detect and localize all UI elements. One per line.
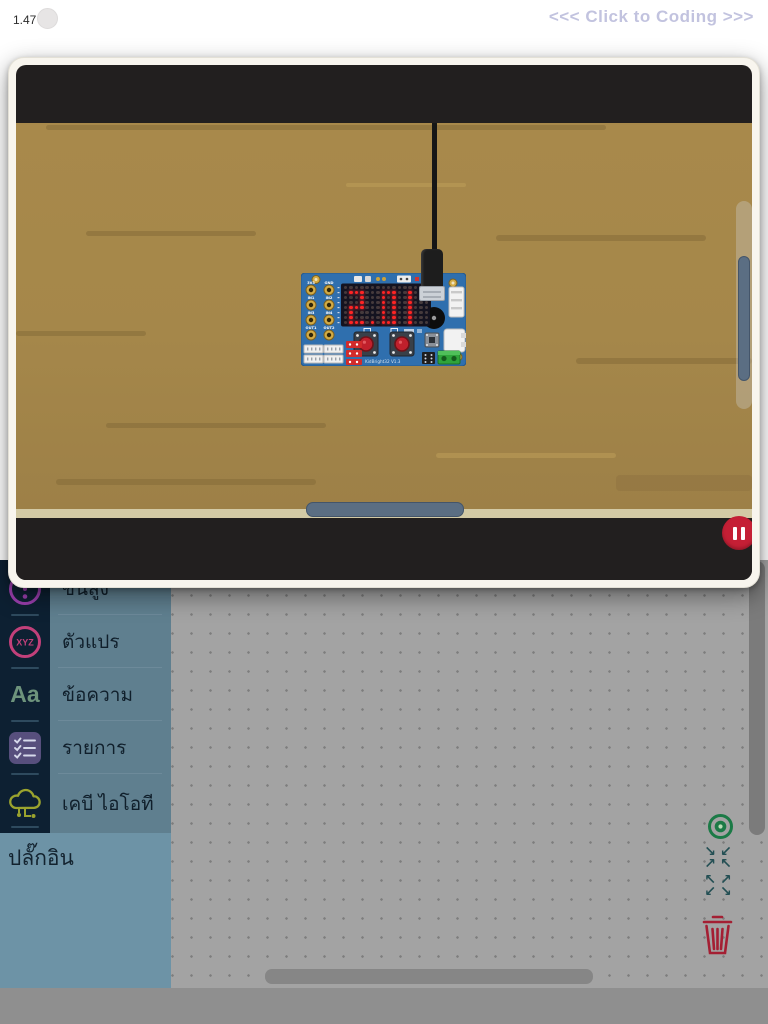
svg-text:OUT2: OUT2	[324, 326, 335, 330]
usb-cable	[432, 123, 437, 253]
simulator-horizontal-scrollbar[interactable]	[306, 502, 464, 517]
pause-button[interactable]	[722, 516, 752, 550]
iot-cloud-icon	[0, 774, 50, 833]
center-workspace-button[interactable]	[707, 813, 734, 840]
plugin-panel: ปลั๊กอิน	[0, 833, 171, 988]
sidebar-item-label: ข้อความ	[62, 668, 133, 721]
svg-text:IN1: IN1	[308, 296, 315, 300]
checklist-icon	[0, 721, 50, 774]
Aa-text-icon: Aa	[0, 668, 50, 721]
zoom-controls: ↘↙ ↗↖ ↖↗ ↙↘	[703, 845, 737, 897]
svg-text:OUT1: OUT1	[306, 326, 317, 330]
sidebar-item-label: ตัวแปร	[62, 615, 120, 668]
svg-text:IN3: IN3	[308, 311, 315, 315]
svg-text:IN4: IN4	[326, 311, 333, 315]
sidebar-item-label: เคบี ไอโอที	[62, 774, 154, 833]
top-bar: 1.47 <<< Click to Coding >>>	[0, 0, 768, 44]
zoom-out-button arrows-inward-icon[interactable]: ↗↖	[703, 857, 737, 869]
board-reset-button	[425, 333, 439, 347]
plugin-section-label[interactable]: ปลั๊กอิน	[8, 842, 74, 875]
simulator-vertical-scrollbar[interactable]	[738, 256, 750, 381]
svg-text:IN2: IN2	[326, 296, 333, 300]
led-matrix-display	[342, 284, 430, 326]
scene-bottom-mask	[16, 518, 752, 580]
click-to-coding-link[interactable]: <<< Click to Coding >>>	[549, 7, 754, 27]
trash-button[interactable]	[699, 911, 736, 957]
canvas-horizontal-scrollbar[interactable]	[265, 969, 593, 984]
usb-connector-metal	[419, 286, 445, 301]
simulator-vertical-scrollbar-track	[736, 201, 752, 409]
svg-text:3V3: 3V3	[307, 281, 315, 285]
pause-icon	[733, 527, 737, 540]
xyz-circle-icon: XYZ	[0, 615, 50, 668]
sidebar-item-variables[interactable]: XYZ ตัวแปร	[0, 615, 171, 668]
zoom-in-button arrows-outward-icon[interactable]: ↙↘	[703, 885, 737, 897]
divider	[11, 826, 39, 828]
status-dot	[37, 8, 58, 29]
simulator-viewport: 3V3 GND IN1 IN2 IN3 IN4 OUT1 OUT2	[16, 65, 752, 580]
usb-plug	[421, 249, 443, 289]
sidebar-item-label: รายการ	[62, 721, 126, 774]
canvas-vertical-scrollbar[interactable]	[749, 561, 765, 835]
bottom-bar	[0, 988, 768, 1024]
sidebar-item-text[interactable]: Aa ข้อความ	[0, 668, 171, 721]
board-switch-2	[390, 332, 414, 356]
target-icon	[707, 813, 734, 840]
trash-icon	[699, 911, 736, 957]
svg-text:GND: GND	[325, 281, 334, 285]
svg-text:KidBright32 V1.3: KidBright32 V1.3	[365, 359, 401, 364]
pause-icon	[741, 527, 745, 540]
simulator-modal: 3V3 GND IN1 IN2 IN3 IN4 OUT1 OUT2	[8, 57, 760, 588]
workspace-canvas[interactable]	[171, 560, 768, 988]
version-label: 1.47	[13, 13, 36, 27]
sidebar-item-kb-iot[interactable]: เคบี ไอโอที	[0, 774, 171, 833]
svg-text:XYZ: XYZ	[16, 637, 34, 647]
sidebar-item-list[interactable]: รายการ	[0, 721, 171, 774]
kidbright-ide-page: 1.47 <<< Click to Coding >>> ขั้นสูง XYZ…	[0, 0, 768, 1024]
